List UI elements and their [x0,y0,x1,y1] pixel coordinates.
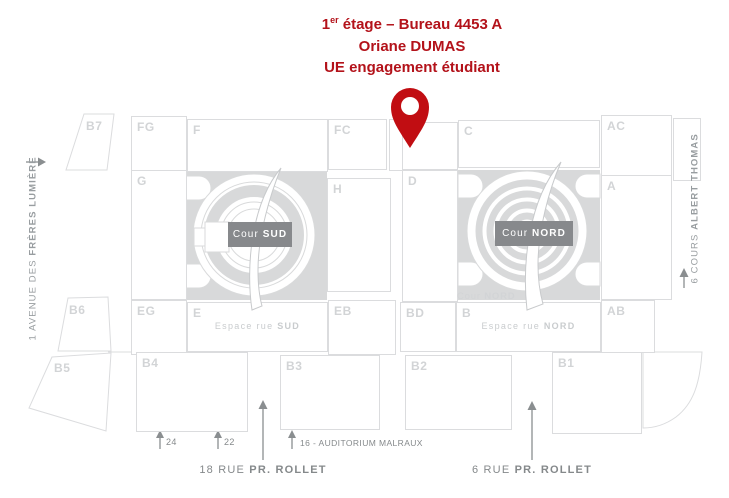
campus-map-page: FG F FC C AC G H D A EG E EB BD B AB B4 … [0,0,729,498]
map-pin-layer [0,0,729,498]
map-pin-hole [401,97,419,115]
